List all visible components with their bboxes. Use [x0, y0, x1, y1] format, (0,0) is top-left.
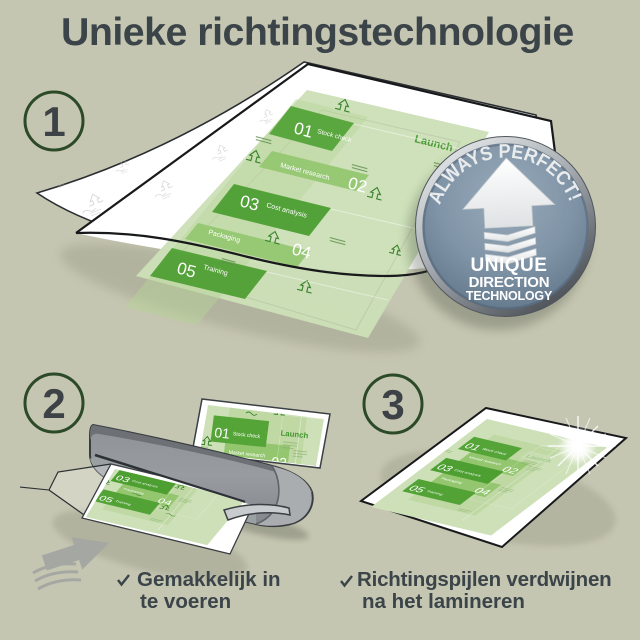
svg-text:na het lamineren: na het lamineren: [362, 590, 525, 613]
svg-text:2: 2: [42, 380, 65, 427]
svg-text:Unieke richtingstechnologie: Unieke richtingstechnologie: [61, 10, 574, 54]
svg-text:Richtingspijlen verdwijnen: Richtingspijlen verdwijnen: [357, 568, 612, 591]
svg-text:Gemakkelijk in: Gemakkelijk in: [137, 568, 281, 591]
svg-text:1: 1: [42, 98, 65, 145]
svg-text:te voeren: te voeren: [140, 590, 231, 613]
svg-text:UNIQUE: UNIQUE: [471, 255, 548, 276]
svg-text:TECHNOLOGY: TECHNOLOGY: [466, 289, 553, 303]
svg-text:3: 3: [381, 381, 404, 428]
